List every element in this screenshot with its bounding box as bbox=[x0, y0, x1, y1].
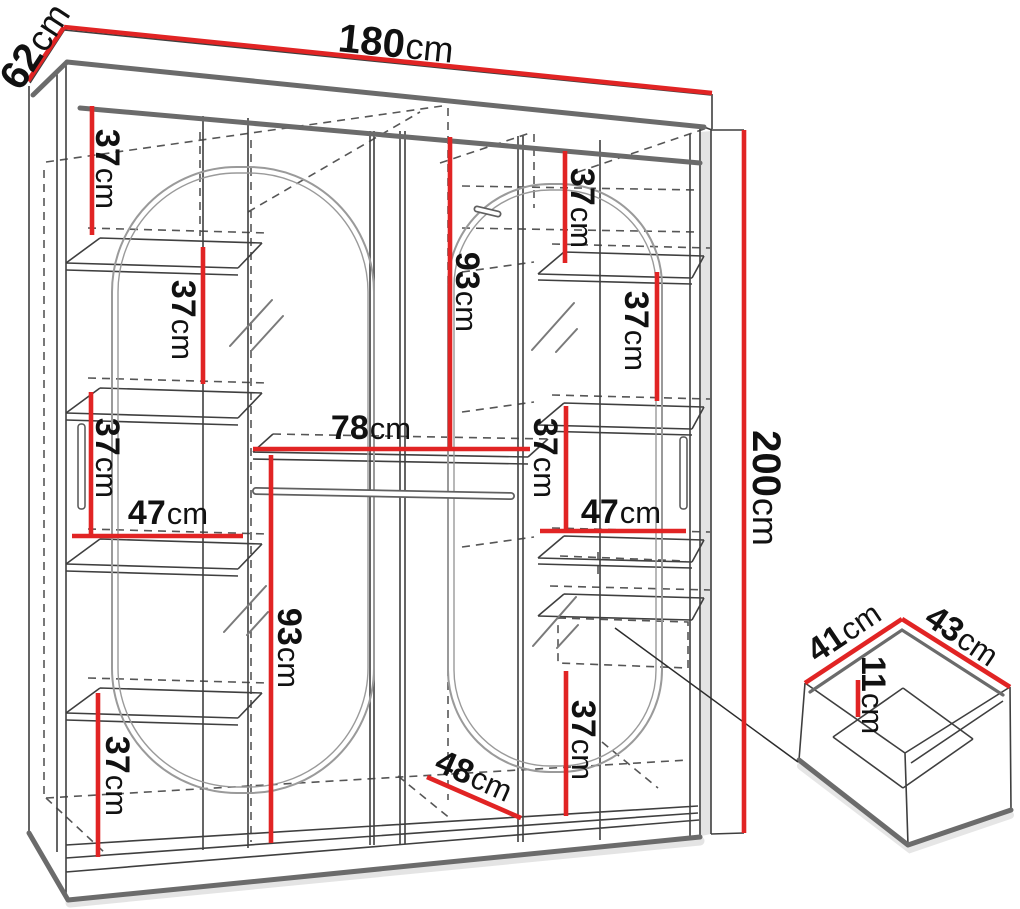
label-right-mid-37: 37cm bbox=[526, 418, 564, 498]
label-right-93: 93cm bbox=[448, 252, 486, 332]
right-edge-shading bbox=[701, 131, 711, 836]
right-door-handle bbox=[680, 437, 687, 509]
label-left-93: 93cm bbox=[270, 608, 308, 688]
label-right-47: 47cm bbox=[581, 493, 661, 531]
label-right-bottom-37: 37cm bbox=[564, 700, 602, 780]
label-left-bottom-37: 37cm bbox=[98, 736, 136, 816]
label-left-47: 47cm bbox=[128, 494, 208, 532]
shelves bbox=[66, 238, 704, 725]
label-drawer-43: 43cm bbox=[918, 598, 1006, 674]
drawer-detail bbox=[615, 628, 1011, 845]
left-door-handle bbox=[78, 424, 85, 509]
mirror-hatch-marks bbox=[224, 300, 578, 648]
label-left-top-37: 37cm bbox=[88, 129, 126, 209]
shadows bbox=[70, 131, 1010, 903]
label-right-upper-37: 37cm bbox=[617, 291, 655, 371]
label-left-second-37: 37cm bbox=[164, 280, 202, 360]
label-drawer-11: 11cm bbox=[854, 656, 892, 734]
dimension-labels: 62cm 180cm 200cm 37cm 37cm 37cm 47cm 93c… bbox=[0, 0, 1006, 816]
diagram-canvas: 62cm 180cm 200cm 37cm 37cm 37cm 47cm 93c… bbox=[0, 0, 1020, 909]
label-center-78: 78cm bbox=[331, 409, 411, 447]
label-width: 180cm bbox=[336, 16, 456, 71]
label-left-third-37: 37cm bbox=[88, 418, 126, 498]
wardrobe-dimension-diagram: 62cm 180cm 200cm 37cm 37cm 37cm 47cm 93c… bbox=[0, 0, 1020, 909]
label-right-top-37: 37cm bbox=[563, 168, 601, 248]
label-depth: 62cm bbox=[0, 0, 79, 97]
left-door-arch-outer bbox=[112, 167, 374, 793]
label-height: 200cm bbox=[744, 430, 788, 546]
